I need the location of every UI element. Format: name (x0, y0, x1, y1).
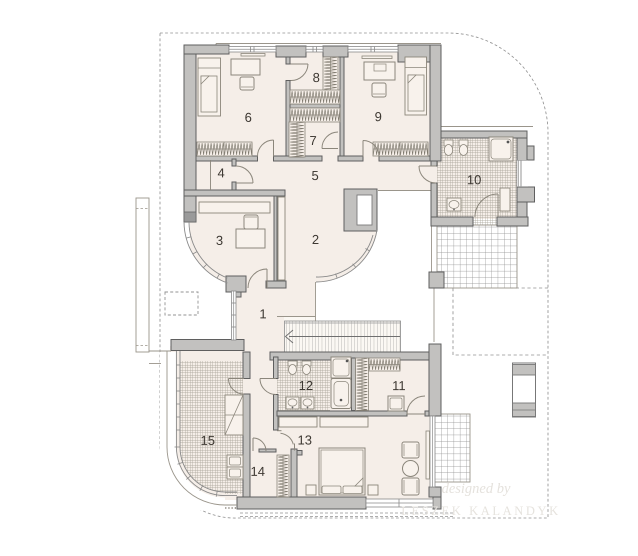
svg-text:1: 1 (259, 306, 266, 321)
svg-text:11: 11 (392, 378, 406, 393)
svg-text:7: 7 (310, 133, 317, 148)
svg-text:10: 10 (467, 172, 481, 187)
svg-text:designed by: designed by (442, 481, 511, 497)
svg-text:9: 9 (375, 109, 382, 124)
svg-text:6: 6 (245, 110, 252, 125)
svg-text:13: 13 (298, 432, 312, 447)
svg-text:3: 3 (216, 233, 223, 248)
svg-text:4: 4 (218, 165, 225, 180)
svg-text:2: 2 (312, 232, 319, 247)
svg-text:5: 5 (312, 168, 319, 183)
svg-text:LESZEK KALANDYK: LESZEK KALANDYK (401, 504, 560, 518)
svg-text:15: 15 (201, 433, 215, 448)
svg-text:14: 14 (250, 464, 264, 479)
svg-text:8: 8 (313, 70, 320, 85)
svg-text:12: 12 (299, 378, 313, 393)
